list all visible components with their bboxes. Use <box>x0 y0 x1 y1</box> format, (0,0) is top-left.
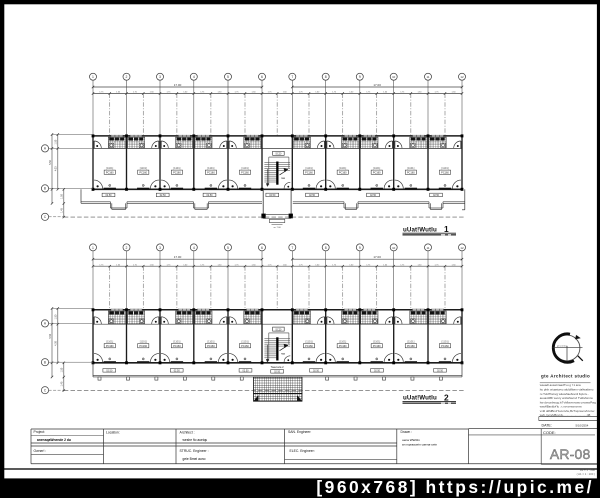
svg-text:1.50: 1.50 <box>55 139 58 144</box>
svg-text:uUat!WutIu: uUat!WutIu <box>403 226 437 233</box>
svg-text:6: 6 <box>261 75 263 79</box>
svg-text:[1101]: [1101] <box>173 340 180 344</box>
svg-text:[1101]: [1101] <box>140 340 147 344</box>
svg-text:SAN. Engineer:: SAN. Engineer: <box>288 430 311 434</box>
svg-text:[1101]: [1101] <box>241 340 248 344</box>
svg-text:1.50: 1.50 <box>61 367 64 372</box>
svg-text:Architect :: Architect : <box>180 430 195 434</box>
svg-text:[1101]: [1101] <box>106 166 113 170</box>
svg-text:anensqaWnende 2 du: anensqaWnende 2 du <box>37 438 71 442</box>
svg-text:10: 10 <box>392 246 396 250</box>
svg-text:Taavuula 2: Taavuula 2 <box>271 365 285 369</box>
svg-text:1: 1 <box>92 246 94 250</box>
svg-text:02.50: 02.50 <box>313 369 320 372</box>
svg-text:02.50: 02.50 <box>106 369 113 372</box>
svg-text:1.50: 1.50 <box>61 194 64 199</box>
svg-text:ELEC. Engineer:: ELEC. Engineer: <box>290 449 315 453</box>
svg-text:PC160: PC160 <box>139 345 147 348</box>
svg-text:12: 12 <box>460 246 464 250</box>
svg-text:02.50: 02.50 <box>274 370 281 373</box>
svg-text:10: 10 <box>392 75 396 79</box>
svg-text:02.50: 02.50 <box>174 369 181 372</box>
svg-text:17.00: 17.00 <box>174 83 182 87</box>
svg-text:12: 12 <box>460 75 464 79</box>
svg-text:PC160: PC160 <box>373 345 381 348</box>
svg-text:[1101]: [1101] <box>305 166 312 170</box>
svg-text:2: 2 <box>126 75 128 79</box>
svg-text:CODE:: CODE: <box>543 430 556 435</box>
svg-text:4.00: 4.00 <box>55 341 58 346</box>
svg-text:weshe fio aueiqu: weshe fio aueiqu <box>183 438 208 442</box>
svg-text:1.50: 1.50 <box>55 314 58 319</box>
svg-text:uena WWdin: uena WWdin <box>402 438 420 442</box>
svg-text:9: 9 <box>359 246 361 250</box>
svg-text:02.50: 02.50 <box>106 194 113 197</box>
svg-text:[1101]: [1101] <box>373 340 380 344</box>
svg-text:( A1 = 1 : 100 ): ( A1 = 1 : 100 ) <box>577 472 595 476</box>
svg-text:[1101]: [1101] <box>407 340 414 344</box>
svg-text:PC160: PC160 <box>106 345 114 348</box>
svg-text:17.00: 17.00 <box>174 255 182 259</box>
svg-text:11: 11 <box>426 75 429 79</box>
svg-text:02.50: 02.50 <box>374 369 381 372</box>
svg-text:PC160: PC160 <box>106 171 114 174</box>
svg-text:1: 1 <box>92 75 94 79</box>
svg-text:Drawn :: Drawn : <box>401 430 413 434</box>
svg-text:PC160: PC160 <box>407 171 415 174</box>
svg-text:gte architect: gte architect <box>557 345 568 348</box>
svg-text:3: 3 <box>159 75 161 79</box>
svg-text:2: 2 <box>126 246 128 250</box>
svg-text:PC160: PC160 <box>441 345 449 348</box>
svg-text:[1101]: [1101] <box>441 340 448 344</box>
svg-text:vu: vu <box>281 176 285 180</box>
svg-text:geie Bmei auno: geie Bmei auno <box>183 457 206 461</box>
svg-text:[1101]: [1101] <box>441 166 448 170</box>
svg-text:02.50: 02.50 <box>309 194 316 197</box>
svg-text:PC160: PC160 <box>339 345 347 348</box>
svg-text:PC160: PC160 <box>305 345 313 348</box>
svg-text:PC160: PC160 <box>173 171 181 174</box>
svg-text:[1101]: [1101] <box>339 166 346 170</box>
svg-text:B: B <box>44 361 46 365</box>
svg-text:PC160: PC160 <box>373 171 381 174</box>
svg-text:Project:: Project: <box>34 430 46 434</box>
svg-text:PC160: PC160 <box>339 171 347 174</box>
svg-text:PC160: PC160 <box>241 171 249 174</box>
svg-text:8: 8 <box>325 246 327 250</box>
svg-text:5.50: 5.50 <box>49 160 52 165</box>
svg-text:3: 3 <box>159 246 161 250</box>
svg-text:8: 8 <box>325 75 327 79</box>
svg-text:2: 2 <box>444 392 449 402</box>
svg-text:PC160: PC160 <box>305 171 313 174</box>
svg-text:PC160: PC160 <box>241 345 249 348</box>
svg-text:[1101]: [1101] <box>241 166 248 170</box>
svg-text:vu: vu <box>281 352 285 356</box>
svg-text:6: 6 <box>261 246 263 250</box>
svg-text:5.50: 5.50 <box>49 333 52 338</box>
svg-text:an nqeaauein uaena-uein: an nqeaauein uaena-uein <box>402 443 437 447</box>
svg-text:[1101]: [1101] <box>106 340 113 344</box>
svg-text:un 7.00: un 7.00 <box>273 227 281 229</box>
svg-text:1.45: 1.45 <box>61 381 64 386</box>
svg-text:02.50: 02.50 <box>433 194 440 197</box>
svg-text:02.50: 02.50 <box>370 194 377 197</box>
svg-text:[1101]: [1101] <box>140 166 147 170</box>
svg-text:02.50: 02.50 <box>437 369 444 372</box>
svg-text:5: 5 <box>227 75 229 79</box>
svg-text:PC160: PC160 <box>407 345 415 348</box>
svg-text:SC20: SC20 <box>275 328 282 331</box>
svg-text:PC160: PC160 <box>207 171 215 174</box>
svg-text:17.00: 17.00 <box>373 255 381 259</box>
svg-text:[1101]: [1101] <box>173 166 180 170</box>
svg-text:1.45: 1.45 <box>61 207 64 212</box>
svg-text:PC160: PC160 <box>441 171 449 174</box>
svg-text:4: 4 <box>193 246 195 250</box>
svg-text:AR-08: AR-08 <box>550 446 591 462</box>
svg-text:7: 7 <box>291 75 293 79</box>
svg-text:02.50: 02.50 <box>269 194 276 197</box>
svg-text:17.00: 17.00 <box>373 83 381 87</box>
svg-text:Location:: Location: <box>106 430 120 434</box>
svg-text:[960x768] https://upic.me/: [960x768] https://upic.me/ <box>316 477 594 497</box>
svg-text:[1101]: [1101] <box>373 166 380 170</box>
svg-text:[1101]: [1101] <box>339 340 346 344</box>
svg-text:PC160: PC160 <box>173 345 181 348</box>
svg-text:4.00: 4.00 <box>55 166 58 171</box>
svg-text:SC20: SC20 <box>275 153 282 156</box>
svg-text:11: 11 <box>426 246 429 250</box>
svg-text:9: 9 <box>359 75 361 79</box>
svg-text:5/10/2554: 5/10/2554 <box>576 423 589 427</box>
svg-text:gte Architect studio: gte Architect studio <box>541 374 590 379</box>
svg-text:Owner! :: Owner! : <box>34 449 47 453</box>
svg-text:[1101]: [1101] <box>207 166 214 170</box>
svg-text:DATE:: DATE: <box>542 424 552 428</box>
svg-text:PC160: PC160 <box>207 345 215 348</box>
svg-text:B: B <box>44 187 46 191</box>
svg-text:7: 7 <box>291 246 293 250</box>
svg-text:[1101]: [1101] <box>407 166 414 170</box>
svg-text:PC160: PC160 <box>139 171 147 174</box>
svg-text:[1101]: [1101] <box>207 340 214 344</box>
svg-text:5: 5 <box>227 246 229 250</box>
svg-text:02.50: 02.50 <box>207 194 214 197</box>
svg-text:02.50: 02.50 <box>243 369 250 372</box>
svg-text:[1101]: [1101] <box>305 340 312 344</box>
svg-text:1: 1 <box>444 224 449 234</box>
svg-text:uUat!WutIu: uUat!WutIu <box>403 395 437 402</box>
svg-text:STRUC. Engineer :: STRUC. Engineer : <box>180 449 209 453</box>
svg-text:4: 4 <box>193 75 195 79</box>
svg-text:02.50: 02.50 <box>160 194 167 197</box>
